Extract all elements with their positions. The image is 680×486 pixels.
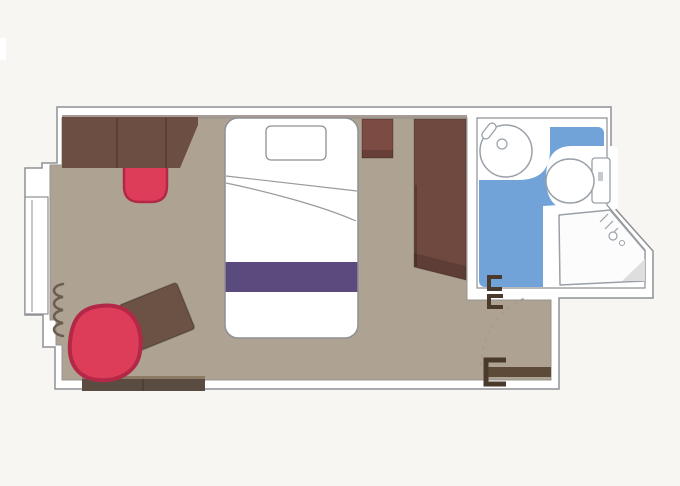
desk-sofa-unit <box>62 117 198 168</box>
armchair <box>70 306 141 381</box>
edge-artifact <box>0 38 6 60</box>
shower-drain-small <box>620 241 625 246</box>
washbasin-drain <box>497 139 507 149</box>
pillow <box>266 126 326 160</box>
toilet-flush-mark <box>598 172 603 181</box>
balcony-window <box>25 197 48 314</box>
nightstand-shade <box>362 150 393 158</box>
floor-plan-canvas <box>0 0 680 486</box>
entry-door-leaf <box>484 367 551 377</box>
toilet <box>546 159 594 203</box>
shower-drain <box>609 232 617 240</box>
bed-runner <box>225 262 358 292</box>
floor-plan <box>0 0 680 486</box>
